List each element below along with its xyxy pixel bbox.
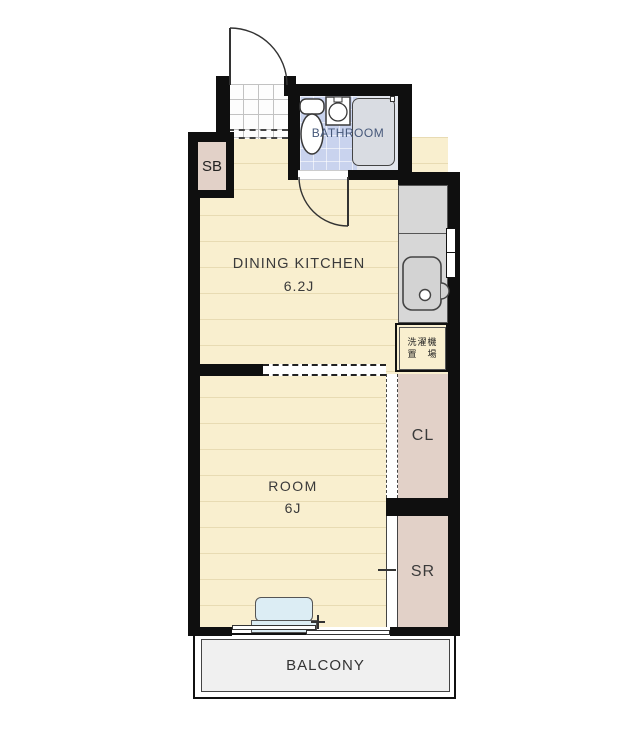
service-room-label: SR bbox=[411, 563, 435, 581]
closet-area: CL bbox=[398, 374, 448, 498]
wall-cl-sr bbox=[386, 498, 460, 516]
balcony-sliding-door-pane bbox=[306, 630, 390, 635]
entry-door-icon bbox=[230, 28, 287, 85]
dining-kitchen-label-wrap: DINING KITCHEN 6.2J bbox=[200, 256, 398, 294]
wall bbox=[398, 84, 412, 184]
room-label: ROOM bbox=[200, 478, 386, 494]
washer-label-line2: 置 場 bbox=[407, 349, 437, 360]
service-room-sliding-door bbox=[386, 516, 398, 627]
wall-dk-room bbox=[188, 364, 264, 376]
wall bbox=[284, 84, 412, 96]
service-room-door-handle bbox=[378, 569, 396, 571]
balcony-label: BALCONY bbox=[286, 657, 365, 674]
shoe-box: SB bbox=[198, 142, 226, 190]
wall-left-outer bbox=[188, 138, 200, 636]
dk-room-sliding-partition bbox=[263, 364, 386, 376]
dining-kitchen-size: 6.2J bbox=[200, 278, 398, 294]
washer-label-line1: 洗濯機 bbox=[407, 337, 437, 348]
dining-kitchen-label: DINING KITCHEN bbox=[200, 256, 398, 272]
closet-folding-door bbox=[386, 374, 398, 498]
counter-divider bbox=[399, 186, 447, 234]
wall bbox=[216, 76, 230, 138]
kitchen-window bbox=[446, 228, 456, 278]
balcony: BALCONY bbox=[201, 639, 450, 692]
kitchen-counter bbox=[398, 185, 448, 323]
wall-bottom-right bbox=[390, 627, 460, 636]
closet-label: CL bbox=[412, 427, 434, 445]
balcony-door-handle-cross bbox=[311, 621, 325, 623]
bathroom-label-wrap: BATHROOM bbox=[298, 96, 398, 170]
room-size: 6J bbox=[200, 500, 386, 516]
entry-step-line bbox=[228, 129, 288, 131]
balcony-sliding-door-pane bbox=[232, 625, 316, 630]
service-room-area: SR bbox=[398, 516, 448, 627]
washing-machine-area: 洗濯機 置 場 bbox=[395, 323, 448, 372]
shoe-box-label: SB bbox=[202, 158, 222, 175]
bathroom-door-threshold bbox=[298, 170, 348, 180]
wall-bottom-left bbox=[188, 627, 232, 636]
floor-plan: CL SR 洗濯機 置 場 BALCONY SB bbox=[0, 0, 640, 733]
window-counter-furniture bbox=[255, 597, 313, 622]
room-label-wrap: ROOM 6J bbox=[200, 478, 386, 516]
bathroom-label: BATHROOM bbox=[312, 126, 384, 140]
